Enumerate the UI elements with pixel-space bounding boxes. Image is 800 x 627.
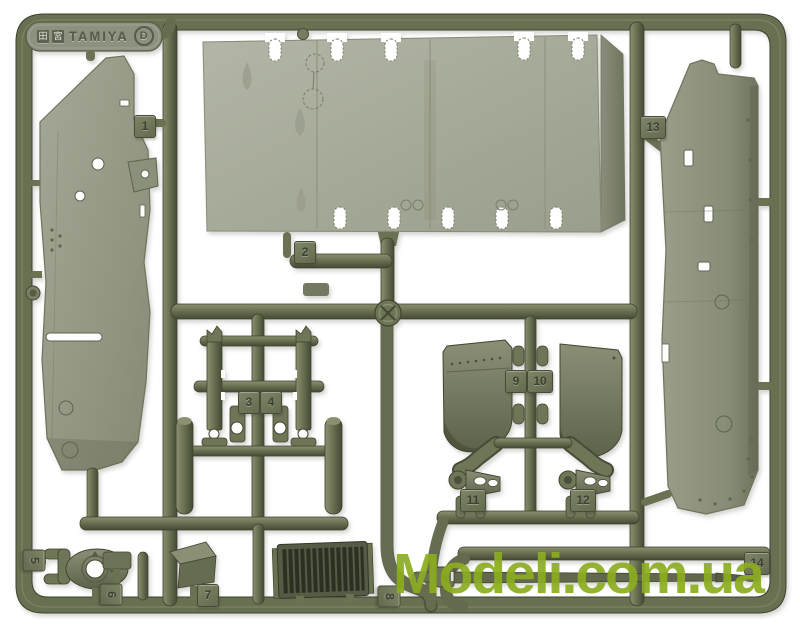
grille-part bbox=[272, 541, 374, 605]
part-number-tag-3: 3 bbox=[238, 391, 260, 414]
brand-text: TAMIYA bbox=[69, 29, 129, 44]
sprue-artwork bbox=[0, 0, 800, 627]
part-number-tag-10: 10 bbox=[527, 370, 553, 393]
part-number-tag-4: 4 bbox=[260, 391, 282, 414]
part-number-tag-6: 6 bbox=[100, 584, 123, 606]
part-number-tag-7: 7 bbox=[197, 584, 219, 607]
part-number-tag-13: 13 bbox=[640, 116, 666, 139]
part-number-tag-2: 2 bbox=[294, 241, 316, 264]
brand-tag: 田 宮 TAMIYA D bbox=[28, 22, 162, 50]
sprue-photo: 田 宮 TAMIYA D 1 2 3 4 5 6 7 8 9 10 11 12 … bbox=[0, 0, 800, 627]
top-hull-panel-part bbox=[203, 24, 625, 232]
watermark-text: Modeli.com.ua bbox=[393, 546, 763, 603]
bottom-left-small-parts bbox=[34, 542, 216, 602]
part-number-tag-9: 9 bbox=[505, 370, 527, 393]
sprue-letter-badge: D bbox=[134, 26, 154, 46]
part-number-tag-12: 12 bbox=[570, 489, 596, 512]
part-number-tag-1: 1 bbox=[134, 115, 156, 138]
brand-kanji-left: 田 bbox=[37, 30, 49, 43]
right-hull-panel-part bbox=[644, 24, 772, 514]
junction-hub bbox=[375, 300, 401, 326]
part-number-tag-5: 5 bbox=[23, 550, 46, 572]
mid-runner bbox=[171, 304, 637, 319]
brand-kanji-right: 宮 bbox=[52, 30, 64, 43]
part-number-tag-11: 11 bbox=[460, 489, 486, 512]
